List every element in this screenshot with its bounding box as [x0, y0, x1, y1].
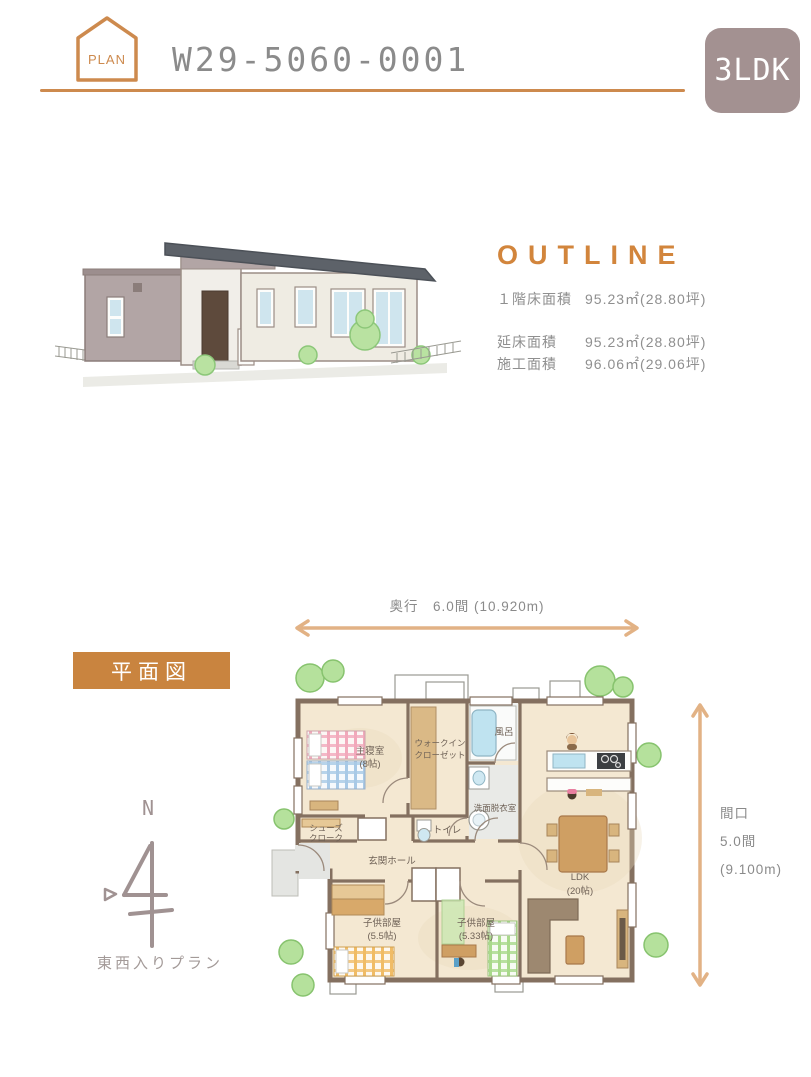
outline-label: １階床面積 — [497, 288, 585, 310]
outline-value: 95.23㎡(28.80坪) — [585, 331, 706, 353]
floor-plan-drawing: 奥行 6.0間 (10.920m) 間口 5.0間 (9.100m) — [270, 588, 811, 1020]
outline-row-construction: 施工面積 96.06㎡(29.06坪) — [497, 353, 706, 375]
dimension-arrow-horizontal: 奥行 6.0間 (10.920m) — [297, 598, 637, 635]
floor-plan-section-label: 平面図 — [73, 652, 230, 689]
depth-dimension-label: 奥行 6.0間 (10.920m) — [389, 598, 544, 614]
label-master-bedroom-size: (8帖) — [359, 758, 380, 770]
floor-plan-section-text: 平面図 — [111, 656, 192, 686]
header-divider — [40, 89, 685, 92]
compass-north-label: N — [142, 796, 154, 820]
outline-value: 95.23㎡(28.80坪) — [585, 288, 706, 310]
label-kids1-size: (5.5帖) — [367, 930, 396, 942]
toilet-fixture — [417, 820, 431, 842]
left-wing — [83, 269, 187, 361]
outline-value: 96.06㎡(29.06坪) — [585, 353, 706, 375]
fence-left — [55, 346, 85, 361]
plan-type-label: 東西入りプラン — [97, 952, 223, 973]
label-entrance-hall: 玄関ホール — [368, 855, 416, 867]
compass-icon — [95, 833, 187, 957]
outline-row-total: 延床面積 95.23㎡(28.80坪) — [497, 331, 706, 353]
layout-type-label: 3LDK — [714, 53, 790, 88]
dimension-arrow-vertical: 間口 5.0間 (9.100m) — [693, 705, 782, 985]
tv-board — [617, 910, 628, 968]
width-dimension-line3: (9.100m) — [720, 862, 782, 877]
front-door — [202, 291, 228, 361]
outline-label: 延床面積 — [497, 331, 585, 353]
ground-shadow — [83, 363, 447, 387]
plan-house-icon: PLAN — [75, 15, 139, 83]
layout-type-badge: 3LDK — [705, 28, 800, 113]
label-washroom: 洗面脱衣室 — [474, 803, 517, 813]
width-dimension-line2: 5.0間 — [720, 834, 756, 849]
label-toilet: トイレ — [433, 825, 462, 836]
label-wic-2: クローゼット — [414, 750, 465, 760]
label-shoes-1: シューズ — [309, 823, 343, 833]
outline-label: 施工面積 — [497, 353, 585, 375]
label-kids1: 子供部屋 — [363, 917, 401, 929]
label-kids2: 子供部屋 — [457, 917, 495, 929]
outline-table: １階床面積 95.23㎡(28.80坪) 延床面積 95.23㎡(28.80坪)… — [497, 288, 706, 375]
entrance-opening — [295, 845, 302, 871]
label-master-bedroom: 主寝室 — [356, 745, 385, 757]
house-outline-shape — [78, 18, 136, 80]
genkan-floor — [299, 843, 330, 879]
coffee-table — [566, 936, 584, 964]
label-bath: 風呂 — [494, 727, 513, 738]
label-wic-1: ウォークイン — [414, 738, 465, 748]
entrance-porch — [272, 850, 298, 896]
outline-title: OUTLINE — [497, 240, 686, 271]
house-illustration — [55, 225, 465, 397]
label-shoes-2: クローク — [309, 833, 343, 843]
label-ldk-size: (20帖) — [567, 885, 593, 897]
right-wing — [241, 273, 417, 361]
width-dimension-line1: 間口 — [720, 806, 749, 821]
label-ldk: LDK — [571, 872, 590, 883]
outline-row-floor1: １階床面積 95.23㎡(28.80坪) — [497, 288, 706, 310]
plan-number: W29-5060-0001 — [172, 40, 469, 79]
label-kids2-size: (5.33帖) — [459, 930, 493, 942]
plan-badge-label: PLAN — [88, 52, 126, 67]
plan-sheet: PLAN W29-5060-0001 3LDK — [0, 0, 811, 1077]
